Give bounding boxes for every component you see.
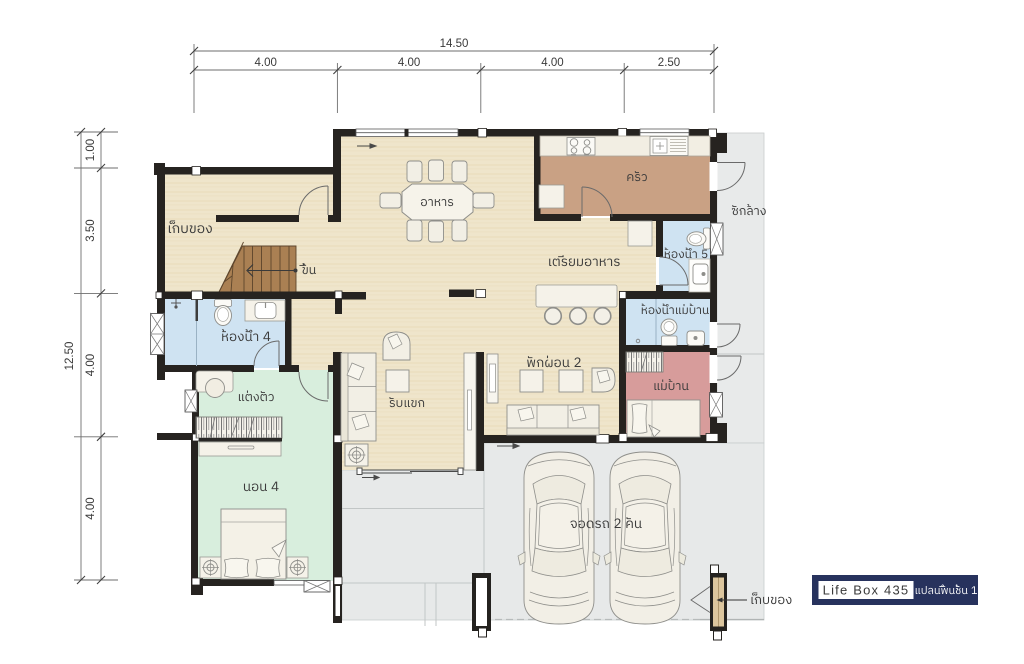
svg-text:3.50: 3.50 (85, 219, 97, 241)
svg-text:4.00: 4.00 (85, 497, 97, 519)
svg-text:14.50: 14.50 (440, 38, 469, 50)
svg-text:Life Box 435: Life Box 435 (823, 583, 910, 598)
svg-text:4.00: 4.00 (255, 57, 277, 69)
svg-text:1.00: 1.00 (85, 139, 97, 161)
svg-text:4.00: 4.00 (541, 57, 563, 69)
svg-text:4.00: 4.00 (85, 354, 97, 376)
svg-text:2.50: 2.50 (658, 57, 680, 69)
svg-text:12.50: 12.50 (64, 342, 76, 371)
svg-text:4.00: 4.00 (398, 57, 420, 69)
